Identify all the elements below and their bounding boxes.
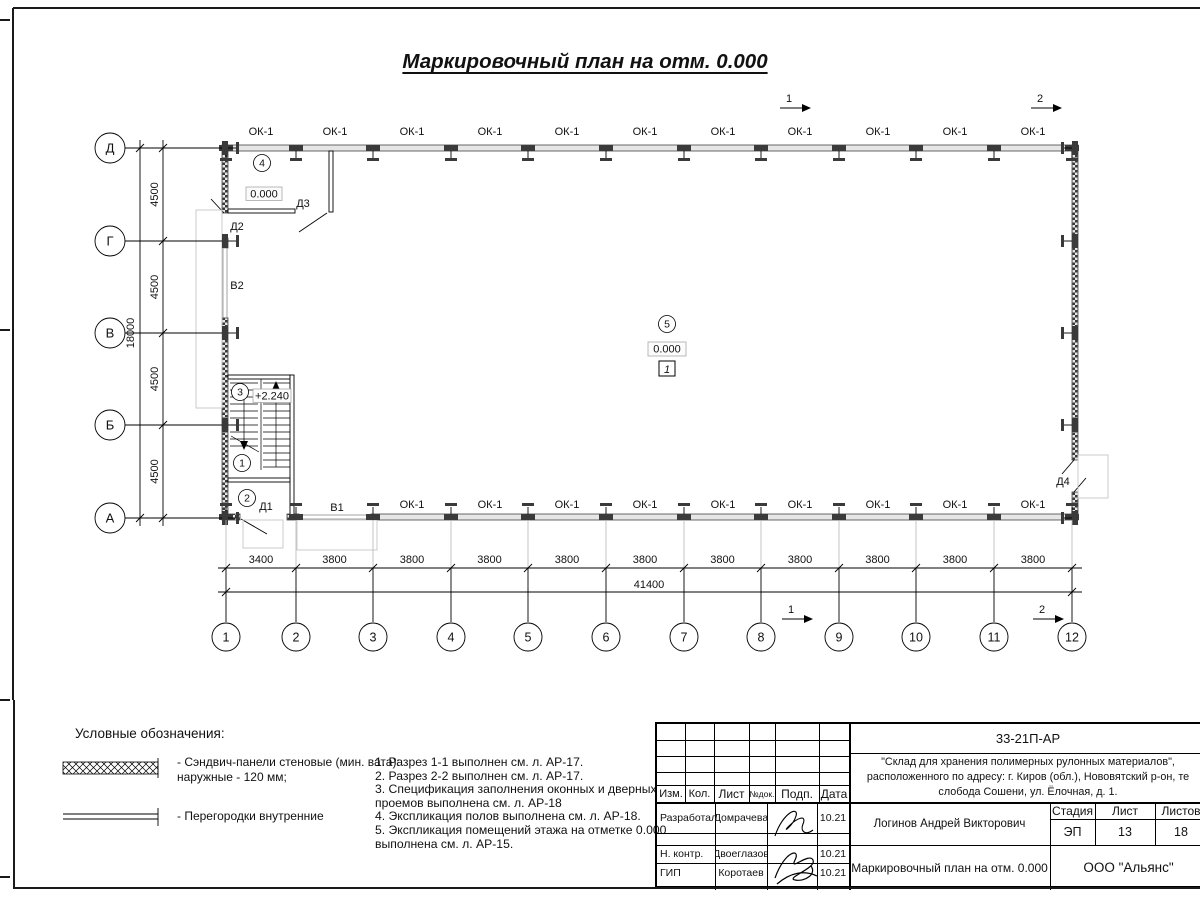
tb-company: ООО "Альянс" bbox=[1050, 845, 1200, 890]
window-label: ОК-1 bbox=[555, 499, 580, 511]
grid-bubble-label: 6 bbox=[603, 631, 610, 645]
gate-v1 bbox=[299, 515, 371, 519]
window-label: ОК-1 bbox=[478, 499, 503, 511]
window-label: ОК-1 bbox=[323, 126, 348, 138]
column-symbol bbox=[754, 514, 768, 520]
window-label: ОК-1 bbox=[866, 126, 891, 138]
tb-doc-code: 33-21П-АР bbox=[849, 724, 1200, 753]
tb-header-list: Лист bbox=[714, 785, 749, 802]
tb-sheet-title: Маркировочный план на отм. 0.000 bbox=[849, 845, 1050, 890]
column-symbol bbox=[987, 514, 1001, 520]
tb-stage-value: ЭП bbox=[1050, 819, 1095, 845]
legend-item-1: - Сэндвич-панели стеновые (мин. вата): н… bbox=[177, 755, 400, 784]
stair-break-line bbox=[231, 436, 259, 452]
door-label-d3: Д3 bbox=[296, 198, 310, 210]
gate-label-v1: В1 bbox=[330, 502, 343, 514]
dimension-label: 4500 bbox=[149, 182, 161, 206]
note-line: 2. Разрез 2-2 выполнен см. л. АР-17. bbox=[375, 770, 673, 784]
column-symbols bbox=[219, 141, 1079, 525]
note-line: 3. Спецификация заполнения оконных и две… bbox=[375, 783, 673, 810]
window-label: ОК-1 bbox=[866, 499, 891, 511]
window-label: ОК-1 bbox=[400, 126, 425, 138]
tb-header-ndok: №док. bbox=[749, 785, 775, 802]
tb-name-developer: Домрачева bbox=[715, 802, 767, 833]
grid-bubble-label: 12 bbox=[1065, 631, 1079, 645]
note-line: 5. Экспликация помещений этажа на отметк… bbox=[375, 824, 673, 851]
gate-label-v2: В2 bbox=[230, 280, 243, 292]
grid-bubble-label: Б bbox=[106, 418, 115, 433]
dimension-label: 3800 bbox=[322, 554, 346, 566]
column-symbol bbox=[222, 418, 228, 432]
tb-sheets-value: 18 bbox=[1155, 819, 1200, 845]
tb-stage-label: Стадия bbox=[1050, 802, 1095, 819]
elevation-marks: 0.000 +2.240 0.000 1 bbox=[246, 187, 686, 403]
grid-bubble-label: 10 bbox=[909, 631, 923, 645]
window-label: ОК-1 bbox=[943, 499, 968, 511]
stair-arrow-down bbox=[240, 441, 248, 450]
door-leaf-d4 bbox=[1062, 460, 1074, 474]
dimension-label: 3800 bbox=[1021, 554, 1045, 566]
window-label: ОК-1 bbox=[1021, 126, 1046, 138]
section-mark-1-bottom: 1 bbox=[788, 604, 794, 616]
tb-sheet-value: 13 bbox=[1095, 819, 1155, 845]
door-label-d1: Д1 bbox=[259, 501, 273, 513]
tb-project-line3: слобода Сошени, ул. Ёлочная, д. 1. bbox=[938, 785, 1117, 800]
elevation-room4: 0.000 bbox=[250, 189, 278, 201]
legend-item-1-line2: наружные - 120 мм; bbox=[177, 770, 287, 784]
tb-header-izm: Изм. bbox=[657, 785, 685, 802]
tb-name-gip: Коротаев bbox=[715, 863, 767, 883]
dimension-base-lines: 41400 18000 bbox=[125, 140, 1082, 592]
sheet-edge-tick bbox=[0, 699, 10, 701]
window-label: ОК-1 bbox=[788, 126, 813, 138]
dimension-label: 3800 bbox=[710, 554, 734, 566]
outer-walls bbox=[222, 145, 1078, 520]
legend-item-1-line1: - Сэндвич-панели стеновые (мин. вата): bbox=[177, 755, 400, 769]
grid-bubble-label: 11 bbox=[988, 631, 1001, 645]
elevation-hall: 0.000 bbox=[653, 344, 681, 356]
door-label-d2: Д2 bbox=[230, 221, 244, 233]
legend-symbol-sandwich-panel bbox=[62, 757, 172, 781]
column-symbol bbox=[677, 145, 691, 151]
door-leaves bbox=[211, 199, 1086, 534]
column-symbol bbox=[1072, 418, 1078, 432]
tb-approver-name: Логинов Андрей Викторович bbox=[849, 802, 1050, 845]
legend-symbol-partition bbox=[62, 806, 172, 830]
column-symbol bbox=[521, 514, 535, 520]
frame-bottom-line bbox=[13, 887, 1200, 889]
column-symbol bbox=[222, 326, 228, 340]
tb-sheets-label: Листов bbox=[1155, 802, 1200, 819]
legend-heading: Условные обозначения: bbox=[75, 726, 225, 741]
window-label: ОК-1 bbox=[711, 126, 736, 138]
door-leaf-d1 bbox=[241, 519, 267, 534]
column-symbol bbox=[222, 511, 228, 525]
window-label: ОК-1 bbox=[788, 499, 813, 511]
column-symbol bbox=[754, 145, 768, 151]
column-symbol bbox=[677, 514, 691, 520]
tb-header-kol: Кол. bbox=[685, 785, 714, 802]
elevation-stair: +2.240 bbox=[255, 391, 289, 403]
grid-bubble-label: 8 bbox=[758, 631, 765, 645]
door-leaf-d3 bbox=[299, 213, 327, 232]
grid-bubble-label: Г bbox=[106, 234, 113, 249]
column-symbol bbox=[222, 234, 228, 248]
grid-bubble-label: В bbox=[106, 326, 115, 341]
column-symbol bbox=[222, 141, 228, 155]
door-leaf-d4 bbox=[1074, 478, 1086, 492]
section-arrow-icon bbox=[1055, 615, 1064, 623]
window-label: ОК-1 bbox=[943, 126, 968, 138]
grid-bubble-label: 4 bbox=[448, 631, 455, 645]
tb-role-ncontrol: Н. контр. bbox=[657, 845, 718, 863]
grid-bubble-label: 7 bbox=[681, 631, 688, 645]
dimension-label: 3800 bbox=[788, 554, 812, 566]
tb-date-developer: 10.21 bbox=[817, 802, 849, 833]
section-mark-2-bottom: 2 bbox=[1039, 604, 1045, 616]
column-symbol bbox=[909, 145, 923, 151]
tb-header-data: Дата bbox=[819, 785, 849, 802]
column-symbol bbox=[599, 514, 613, 520]
column-symbol bbox=[832, 145, 846, 151]
dimension-label: 3800 bbox=[865, 554, 889, 566]
dimension-label: 3800 bbox=[477, 554, 501, 566]
dimension-label: 4500 bbox=[149, 367, 161, 391]
tb-sheet-label: Лист bbox=[1095, 802, 1155, 819]
grid-bubble-label: 2 bbox=[293, 631, 300, 645]
column-symbol bbox=[909, 514, 923, 520]
window-label: ОК-1 bbox=[555, 126, 580, 138]
tb-header-podp: Подп. bbox=[775, 785, 819, 802]
dimension-label: 3800 bbox=[633, 554, 657, 566]
signature-developer bbox=[769, 804, 819, 844]
column-symbol bbox=[289, 514, 303, 520]
tb-project-line2: расположенного по адресу: г. Киров (обл.… bbox=[867, 770, 1189, 785]
column-symbol bbox=[1072, 234, 1078, 248]
window-label: ОК-1 bbox=[249, 126, 274, 138]
tb-role-developer: Разработал bbox=[657, 802, 718, 833]
column-symbol bbox=[1072, 511, 1078, 525]
window-label: ОК-1 bbox=[478, 126, 503, 138]
column-symbol bbox=[987, 145, 1001, 151]
dimension-label: 3800 bbox=[555, 554, 579, 566]
column-symbol bbox=[444, 145, 458, 151]
legend-item-2: - Перегородки внутренние bbox=[177, 809, 324, 824]
total-dim-bottom: 41400 bbox=[634, 579, 665, 591]
tb-name-ncontrol: Двоеглазов bbox=[715, 845, 767, 863]
grid-bubble-label: 9 bbox=[836, 631, 843, 645]
section-arrow-icon bbox=[1053, 104, 1062, 112]
window-label: ОК-1 bbox=[1021, 499, 1046, 511]
room-marker-3: 3 bbox=[237, 387, 243, 399]
sheet-frame bbox=[0, 8, 1200, 700]
title-block: Изм. Кол. Лист №док. Подп. Дата Разработ… bbox=[655, 722, 1200, 888]
dimension-label: 3800 bbox=[943, 554, 967, 566]
floor-type-marker: 1 bbox=[664, 364, 670, 376]
window-label: ОК-1 bbox=[633, 499, 658, 511]
notes-block: 1. Разрез 1-1 выполнен см. л. АР-17. 2. … bbox=[375, 756, 673, 851]
window-label: ОК-1 bbox=[633, 126, 658, 138]
tb-project-line1: "Склад для хранения полимерных рулонных … bbox=[881, 755, 1175, 770]
dimension-label: 3800 bbox=[400, 554, 424, 566]
window-label: ОК-1 bbox=[400, 499, 425, 511]
column-symbol bbox=[1072, 141, 1078, 155]
section-mark-2-top: 2 bbox=[1037, 93, 1043, 105]
column-symbol bbox=[1072, 326, 1078, 340]
room-marker-1: 1 bbox=[239, 458, 245, 470]
frame-left-line bbox=[13, 700, 15, 888]
column-symbol bbox=[289, 145, 303, 151]
grid-bubble-label: 3 bbox=[370, 631, 377, 645]
dimension-label: 3400 bbox=[249, 554, 273, 566]
section-arrow-icon bbox=[802, 104, 811, 112]
column-symbol bbox=[366, 145, 380, 151]
column-symbol bbox=[832, 514, 846, 520]
sheet-edge-tick bbox=[0, 876, 10, 878]
window-label: ОК-1 bbox=[711, 499, 736, 511]
dimension-label: 4500 bbox=[149, 275, 161, 299]
room-marker-5: 5 bbox=[664, 319, 670, 331]
tb-role-gip: ГИП bbox=[657, 863, 718, 883]
door-label-d4: Д4 bbox=[1056, 476, 1070, 488]
gate-v2 bbox=[223, 248, 227, 318]
column-symbol bbox=[599, 145, 613, 151]
grid-bubble-label: 5 bbox=[525, 631, 532, 645]
note-line: 4. Экспликация полов выполнена см. л. АР… bbox=[375, 810, 673, 824]
dimension-label: 4500 bbox=[149, 459, 161, 483]
column-symbol bbox=[444, 514, 458, 520]
room-marker-2: 2 bbox=[244, 493, 250, 505]
signature-gip bbox=[767, 846, 822, 888]
drawing-sheet: { "colors": {"wall_fill": "#e6e6e6", "li… bbox=[0, 0, 1200, 900]
room-marker-4: 4 bbox=[259, 158, 265, 170]
section-mark-1-top: 1 bbox=[786, 93, 792, 105]
grid-bubble-label: 1 bbox=[223, 631, 230, 645]
total-dim-left: 18000 bbox=[125, 318, 137, 349]
floor-plan-drawing: 1234567891011123400380038003800380038003… bbox=[0, 0, 1200, 700]
window-labels: ОК-1ОК-1ОК-1ОК-1ОК-1ОК-1ОК-1ОК-1ОК-1ОК-1… bbox=[249, 126, 1046, 511]
grid-bubble-label: А bbox=[106, 511, 115, 526]
section-marks: 1 2 1 2 bbox=[780, 93, 1064, 623]
column-symbol bbox=[521, 145, 535, 151]
section-arrow-icon bbox=[804, 615, 813, 623]
tb-project-description: "Склад для хранения полимерных рулонных … bbox=[849, 753, 1200, 802]
grid-bubble-label: Д bbox=[106, 141, 115, 156]
column-symbol bbox=[366, 514, 380, 520]
note-line: 1. Разрез 1-1 выполнен см. л. АР-17. bbox=[375, 756, 673, 770]
